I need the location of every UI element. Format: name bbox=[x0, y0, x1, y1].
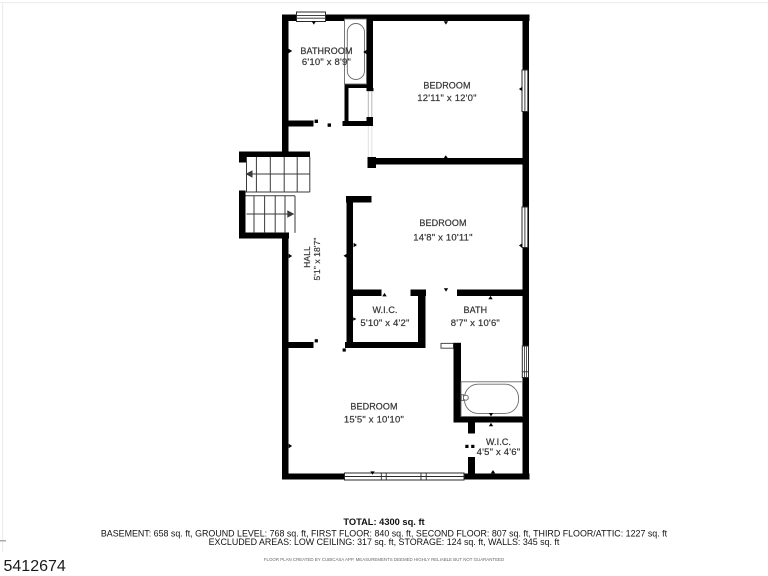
svg-text:5412674: 5412674 bbox=[4, 558, 66, 575]
svg-text:BEDROOM: BEDROOM bbox=[419, 218, 466, 228]
svg-text:12'11" x 12'0": 12'11" x 12'0" bbox=[417, 93, 476, 104]
svg-text:EXCLUDED AREAS: LOW CEILING: 3: EXCLUDED AREAS: LOW CEILING: 317 sq. ft,… bbox=[209, 537, 560, 547]
svg-text:8'7" x 10'6": 8'7" x 10'6" bbox=[451, 318, 500, 329]
svg-text:14'8" x 10'11": 14'8" x 10'11" bbox=[413, 233, 472, 244]
svg-text:5'10" x 4'2": 5'10" x 4'2" bbox=[360, 318, 409, 329]
svg-text:HALL: HALL bbox=[302, 246, 312, 268]
svg-text:6'10" x 8'9": 6'10" x 8'9" bbox=[302, 57, 351, 68]
svg-text:BATH: BATH bbox=[464, 305, 488, 315]
svg-text:BEDROOM: BEDROOM bbox=[350, 402, 397, 412]
svg-text:W.I.C.: W.I.C. bbox=[372, 305, 397, 315]
svg-text:W.I.C.: W.I.C. bbox=[486, 437, 511, 447]
svg-text:BATHROOM: BATHROOM bbox=[300, 46, 352, 56]
svg-text:FLOOR PLAN CREATED BY CUBICASA: FLOOR PLAN CREATED BY CUBICASA APP. MEAS… bbox=[264, 557, 504, 562]
svg-text:BEDROOM: BEDROOM bbox=[423, 81, 470, 91]
svg-text:TOTAL: 4300 sq. ft: TOTAL: 4300 sq. ft bbox=[343, 517, 424, 527]
svg-text:5'1" x 18'7": 5'1" x 18'7" bbox=[312, 237, 322, 280]
svg-text:4'5" x 4'6": 4'5" x 4'6" bbox=[477, 447, 521, 458]
svg-text:15'5" x 10'10": 15'5" x 10'10" bbox=[344, 414, 404, 425]
